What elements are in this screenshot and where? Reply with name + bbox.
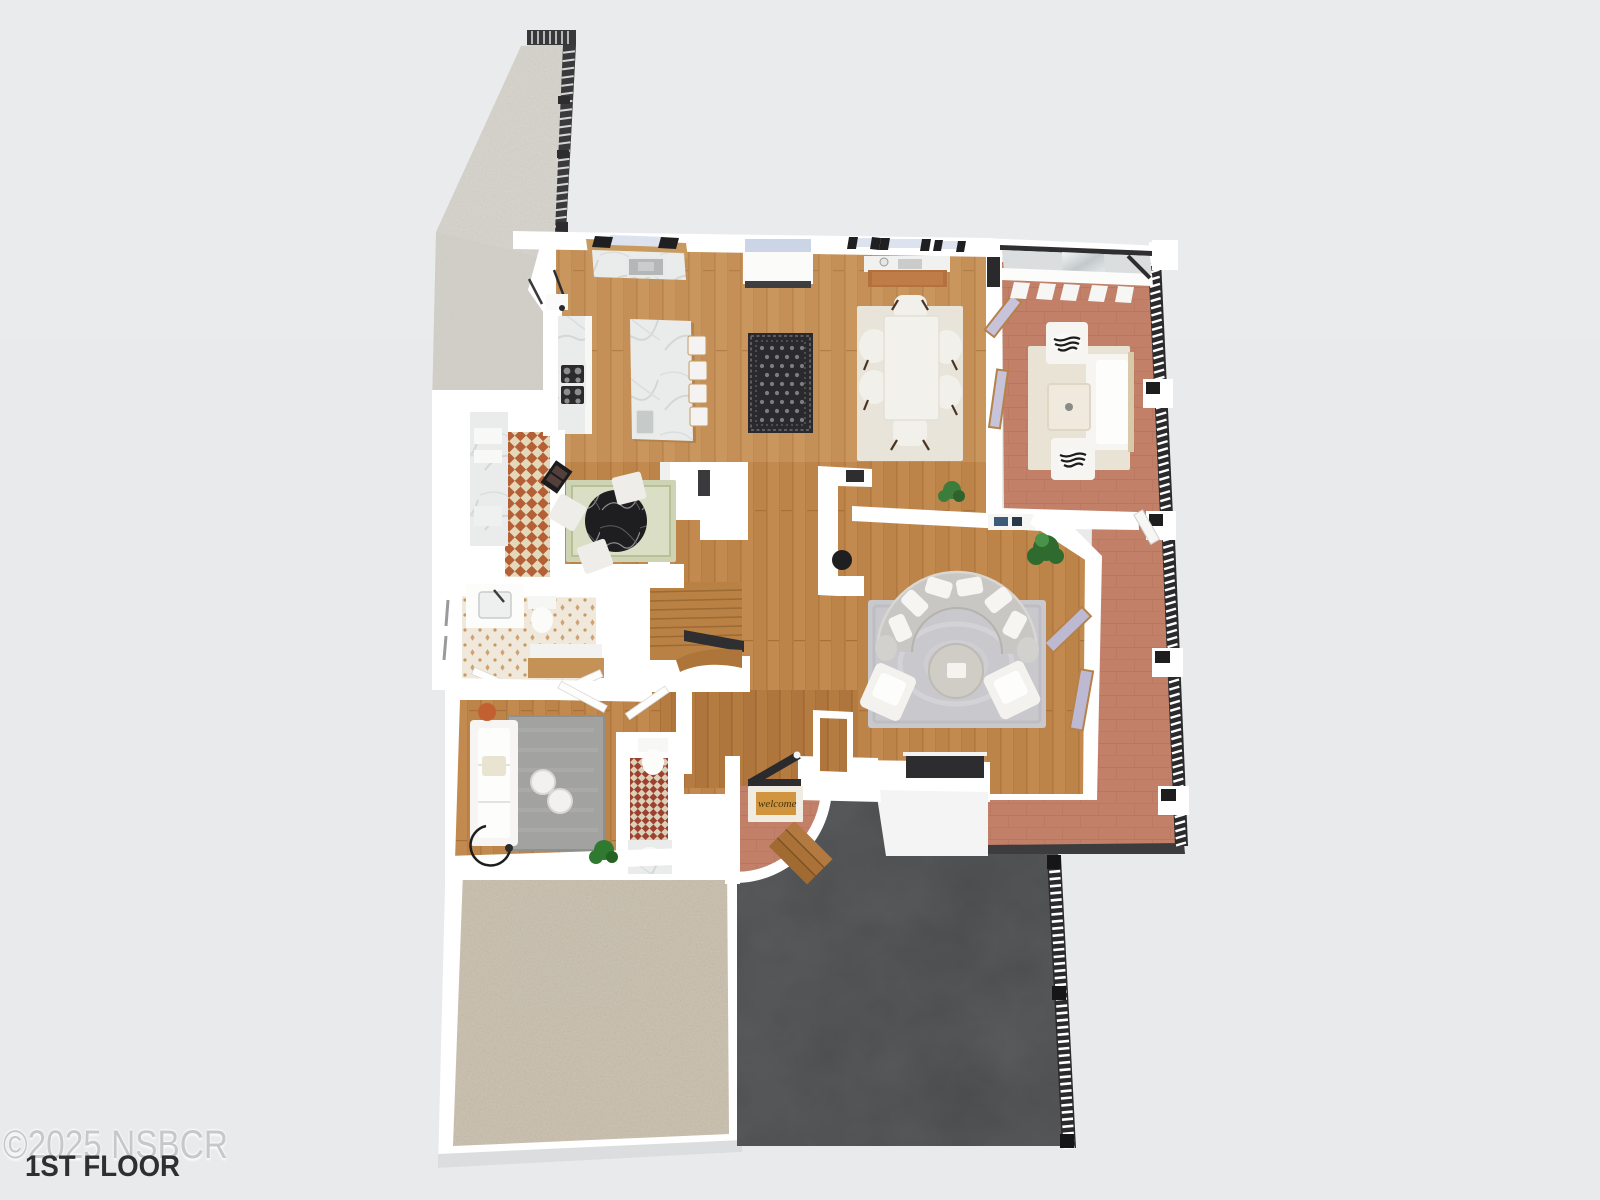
svg-text:welcome: welcome: [758, 798, 797, 810]
svg-text:1ST FLOOR: 1ST FLOOR: [25, 1150, 180, 1183]
